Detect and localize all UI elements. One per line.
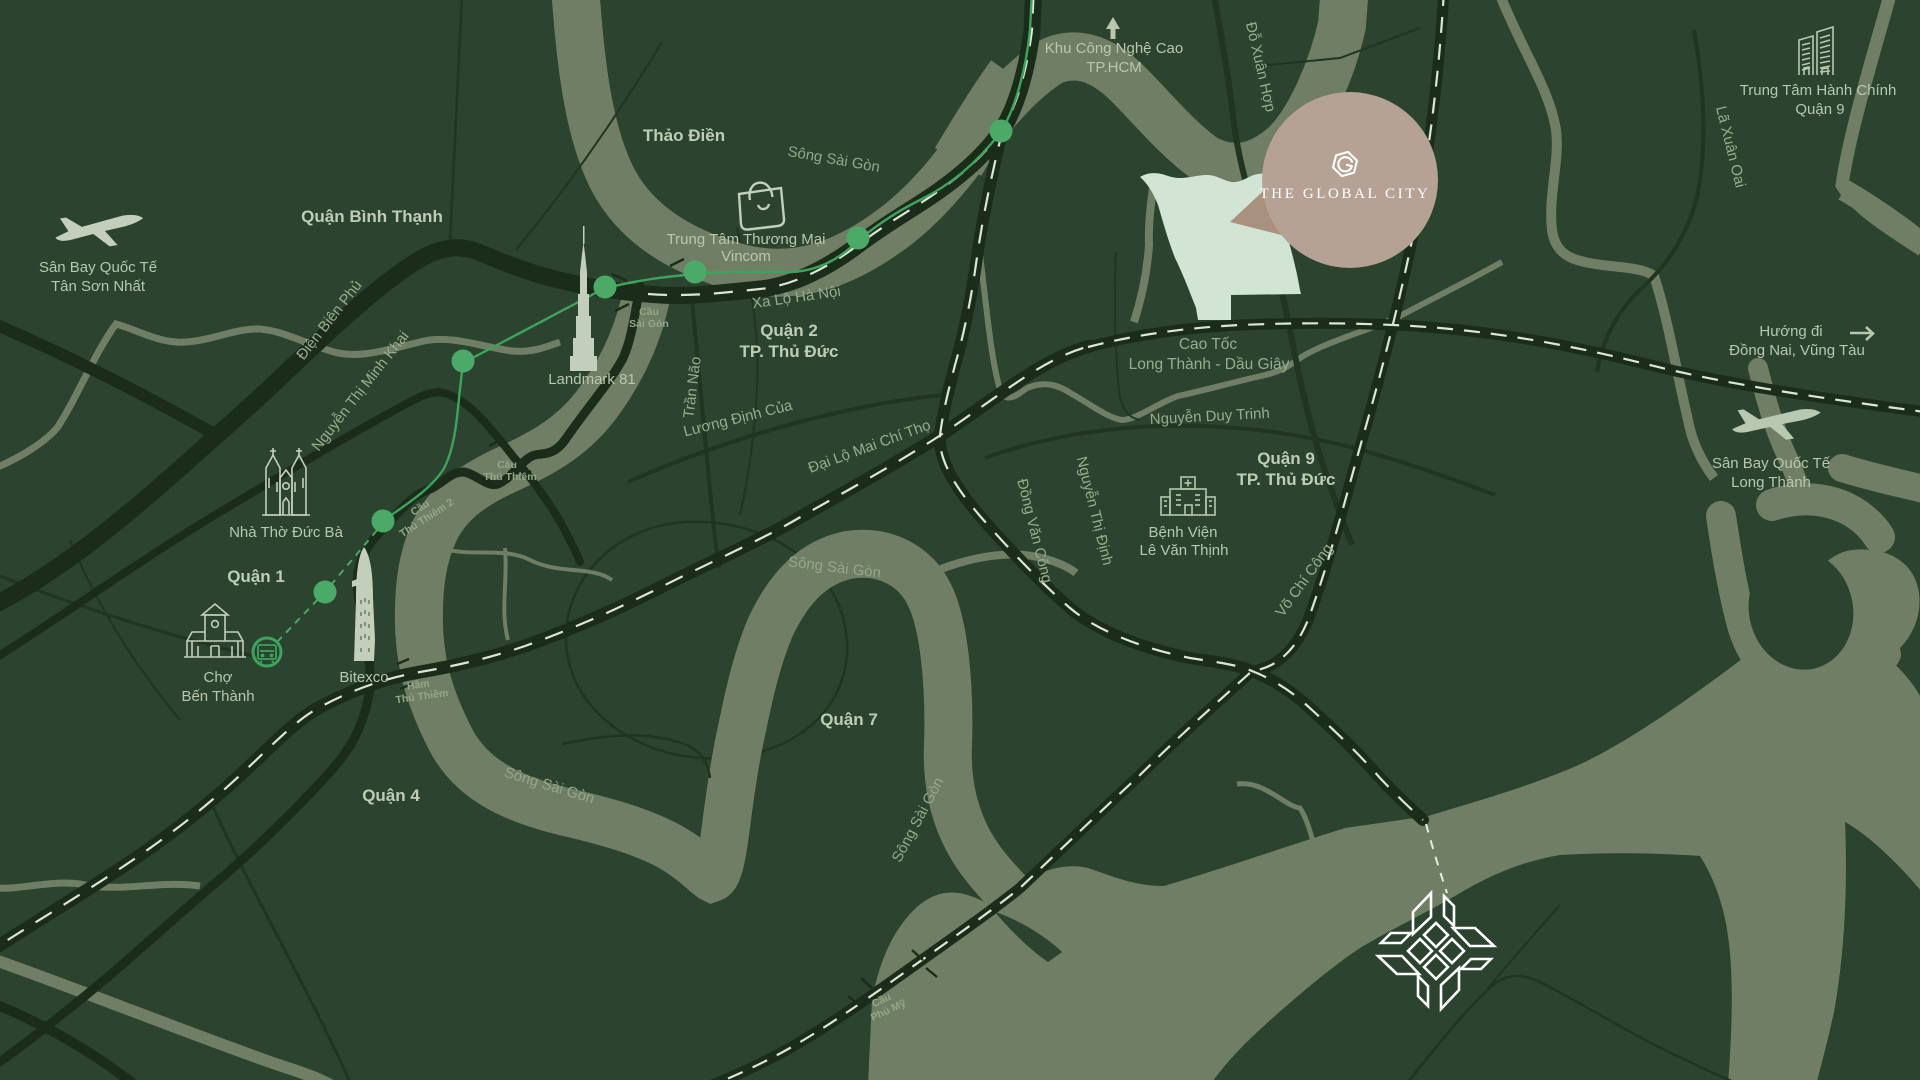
svg-text:Tân Sơn Nhất: Tân Sơn Nhất	[51, 278, 146, 295]
svg-text:Chợ: Chợ	[203, 669, 232, 686]
svg-text:Long Thành: Long Thành	[1731, 474, 1811, 491]
svg-text:Vincom: Vincom	[721, 248, 771, 265]
svg-text:Cầu: Cầu	[497, 459, 517, 471]
svg-text:Quận 1: Quận 1	[227, 567, 285, 586]
svg-text:Sân Bay Quốc Tế: Sân Bay Quốc Tế	[39, 259, 158, 276]
svg-text:Quận 2: Quận 2	[760, 321, 818, 340]
svg-text:Đồng Nai, Vũng Tàu: Đồng Nai, Vũng Tàu	[1729, 342, 1865, 359]
svg-text:Bệnh Viện: Bệnh Viện	[1149, 524, 1218, 541]
svg-text:Quận 4: Quận 4	[362, 786, 420, 805]
svg-text:Khu Công Nghệ Cao: Khu Công Nghệ Cao	[1045, 40, 1183, 57]
svg-text:Cao Tốc: Cao Tốc	[1179, 336, 1238, 353]
svg-text:Sài Gòn: Sài Gòn	[629, 318, 669, 330]
svg-text:Trung Tâm Thương Mại: Trung Tâm Thương Mại	[667, 231, 826, 248]
svg-text:Thảo Điền: Thảo Điền	[643, 126, 725, 145]
svg-text:Hướng đi: Hướng đi	[1759, 323, 1822, 340]
svg-text:Quận 9: Quận 9	[1257, 449, 1315, 468]
svg-text:THE GLOBAL CITY: THE GLOBAL CITY	[1260, 186, 1431, 202]
svg-text:Trung Tâm Hành Chính: Trung Tâm Hành Chính	[1740, 82, 1897, 99]
svg-text:TP. Thủ Đức: TP. Thủ Đức	[1237, 470, 1336, 489]
svg-text:TP. Thủ Đức: TP. Thủ Đức	[740, 342, 839, 361]
svg-text:Sân Bay Quốc Tế: Sân Bay Quốc Tế	[1712, 455, 1831, 472]
svg-text:Bitexco: Bitexco	[339, 669, 388, 686]
svg-text:Quận 9: Quận 9	[1795, 101, 1844, 118]
svg-text:Landmark 81: Landmark 81	[548, 371, 636, 388]
svg-text:Lê Văn Thịnh: Lê Văn Thịnh	[1140, 542, 1229, 559]
svg-text:Quận 7: Quận 7	[820, 710, 878, 729]
svg-text:Cầu: Cầu	[639, 306, 659, 318]
svg-text:Nhà Thờ Đức Bà: Nhà Thờ Đức Bà	[229, 524, 343, 541]
svg-text:Long Thành - Dầu Giây: Long Thành - Dầu Giây	[1129, 356, 1290, 373]
svg-text:Thủ Thiêm: Thủ Thiêm	[483, 471, 536, 483]
svg-text:Quận Bình Thạnh: Quận Bình Thạnh	[301, 207, 443, 226]
svg-text:TP.HCM: TP.HCM	[1086, 59, 1142, 76]
svg-text:Bến Thành: Bến Thành	[181, 688, 254, 705]
